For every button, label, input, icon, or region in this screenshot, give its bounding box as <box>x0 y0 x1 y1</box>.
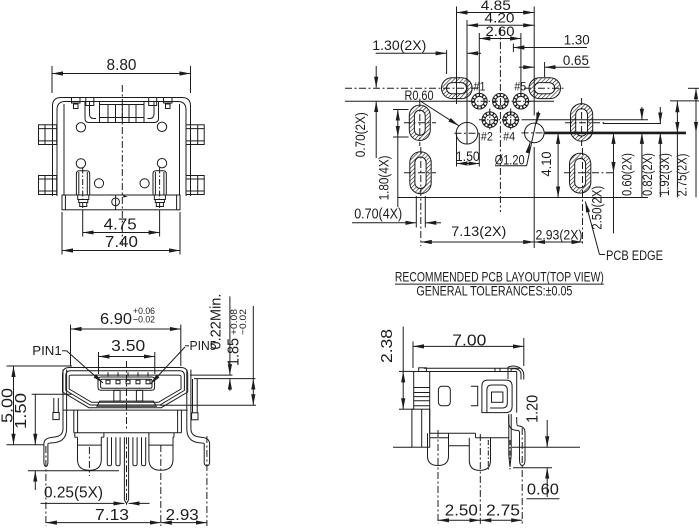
svg-text:0.65: 0.65 <box>563 53 589 68</box>
svg-text:2.93: 2.93 <box>166 507 199 524</box>
svg-text:3.50: 3.50 <box>111 338 145 355</box>
svg-text:0.25(5X): 0.25(5X) <box>44 484 103 501</box>
svg-text:2.75: 2.75 <box>486 502 520 519</box>
svg-text:1.20: 1.20 <box>525 395 542 423</box>
svg-text:6.90: 6.90 <box>100 311 132 328</box>
svg-text:1.50: 1.50 <box>456 149 480 164</box>
svg-text:0.70(4X): 0.70(4X) <box>354 207 402 223</box>
svg-text:PCB EDGE: PCB EDGE <box>606 248 663 263</box>
svg-text:0.22Min.: 0.22Min. <box>208 294 225 350</box>
svg-text:0.60(2X): 0.60(2X) <box>620 153 635 196</box>
svg-text:#1: #1 <box>474 80 486 94</box>
svg-text:7.13: 7.13 <box>95 507 129 524</box>
svg-text:Ø1.20: Ø1.20 <box>495 153 525 168</box>
svg-text:4.10: 4.10 <box>539 152 554 177</box>
svg-text:2.38: 2.38 <box>379 329 396 363</box>
svg-text:1.80(4X): 1.80(4X) <box>377 155 392 200</box>
svg-text:2.50(2X): 2.50(2X) <box>590 186 605 230</box>
svg-text:2.60: 2.60 <box>486 24 515 39</box>
svg-text:1.30(2X): 1.30(2X) <box>372 38 426 53</box>
svg-text:#2: #2 <box>481 129 493 143</box>
svg-text:−0.02: −0.02 <box>133 315 155 326</box>
svg-text:1.92(3X): 1.92(3X) <box>657 153 672 196</box>
svg-text:RECOMMENDED PCB LAYOUT(TOP VIE: RECOMMENDED PCB LAYOUT(TOP VIEW) <box>395 270 604 285</box>
svg-text:GENERAL TOLERANCES:±0.05: GENERAL TOLERANCES:±0.05 <box>416 284 572 299</box>
svg-text:1.50: 1.50 <box>13 393 30 429</box>
svg-text:#5: #5 <box>514 80 526 94</box>
svg-text:−0.02: −0.02 <box>238 309 249 335</box>
svg-text:7.13(2X): 7.13(2X) <box>451 224 506 239</box>
svg-text:4.75: 4.75 <box>104 217 137 234</box>
svg-text:2.75(2X): 2.75(2X) <box>675 154 690 197</box>
svg-text:0.60: 0.60 <box>527 481 559 498</box>
svg-text:0.70(2X): 0.70(2X) <box>353 112 368 157</box>
svg-text:PIN1: PIN1 <box>32 343 62 358</box>
svg-text:2.93(2X): 2.93(2X) <box>536 227 583 242</box>
svg-text:0.82(2X): 0.82(2X) <box>640 153 655 196</box>
svg-text:1.30: 1.30 <box>564 32 590 47</box>
svg-text:2.50: 2.50 <box>445 502 478 519</box>
svg-text:7.40: 7.40 <box>105 234 138 251</box>
svg-text:1.85: 1.85 <box>226 338 243 366</box>
svg-text:8.80: 8.80 <box>107 57 137 74</box>
svg-text:#4: #4 <box>503 129 515 143</box>
